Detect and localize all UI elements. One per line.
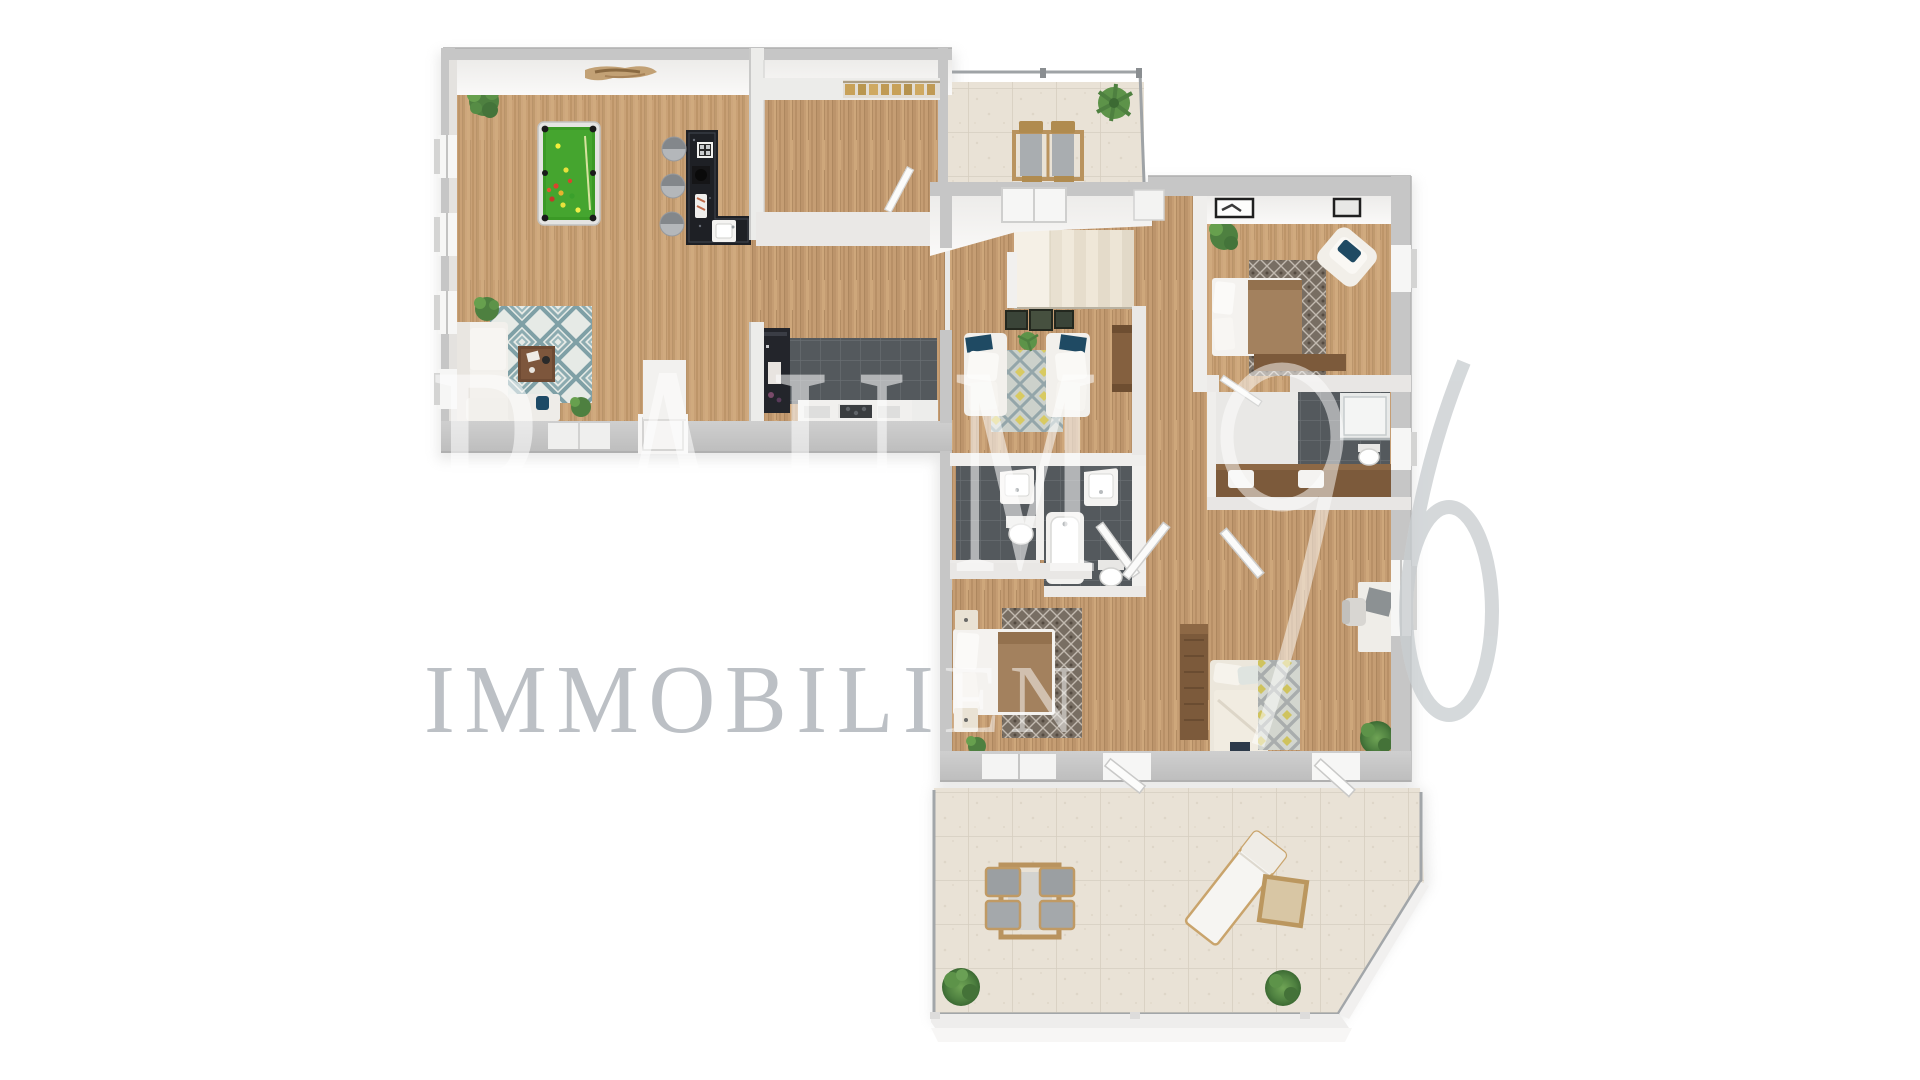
svg-text:R: R [430,304,554,636]
svg-text:M: M [952,305,1099,637]
svg-text:U: U [772,304,906,636]
svg-text:A: A [602,304,736,636]
